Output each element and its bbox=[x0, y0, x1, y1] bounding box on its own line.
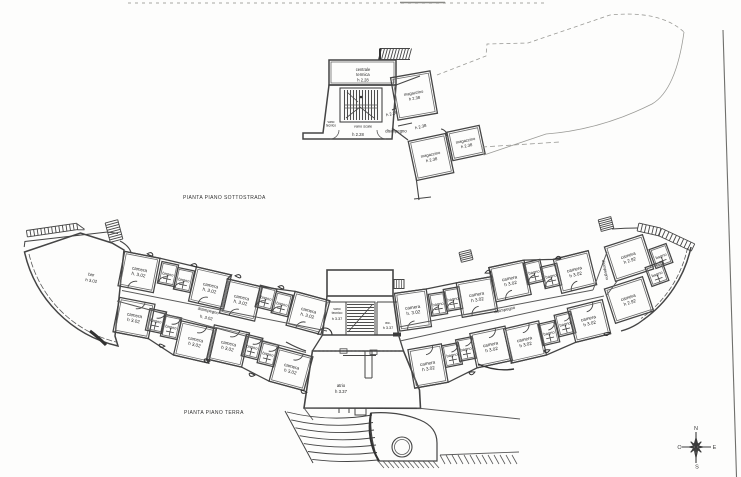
svg-text:PIANTA PIANO TERRA: PIANTA PIANO TERRA bbox=[184, 410, 244, 416]
svg-text:h 3.37: h 3.37 bbox=[332, 317, 343, 321]
svg-text:PIANTA PIANO SOTTOSTRADA: PIANTA PIANO SOTTOSTRADA bbox=[183, 195, 266, 201]
svg-text:h 3.37: h 3.37 bbox=[383, 326, 394, 330]
svg-text:O: O bbox=[677, 445, 682, 451]
svg-text:tecnico: tecnico bbox=[332, 311, 343, 315]
svg-text:vano scale: vano scale bbox=[354, 125, 372, 129]
svg-text:atrio: atrio bbox=[337, 383, 346, 388]
svg-text:h 2.28: h 2.28 bbox=[352, 132, 364, 137]
svg-text:S: S bbox=[695, 465, 699, 471]
svg-text:N: N bbox=[694, 426, 698, 432]
svg-text:tecnico: tecnico bbox=[326, 124, 336, 128]
svg-text:E: E bbox=[713, 445, 717, 451]
svg-text:h 2.28: h 2.28 bbox=[357, 78, 369, 83]
svg-text:wc.: wc. bbox=[385, 321, 391, 325]
svg-text:h 3.37: h 3.37 bbox=[335, 389, 348, 394]
svg-text:termica: termica bbox=[356, 72, 370, 77]
